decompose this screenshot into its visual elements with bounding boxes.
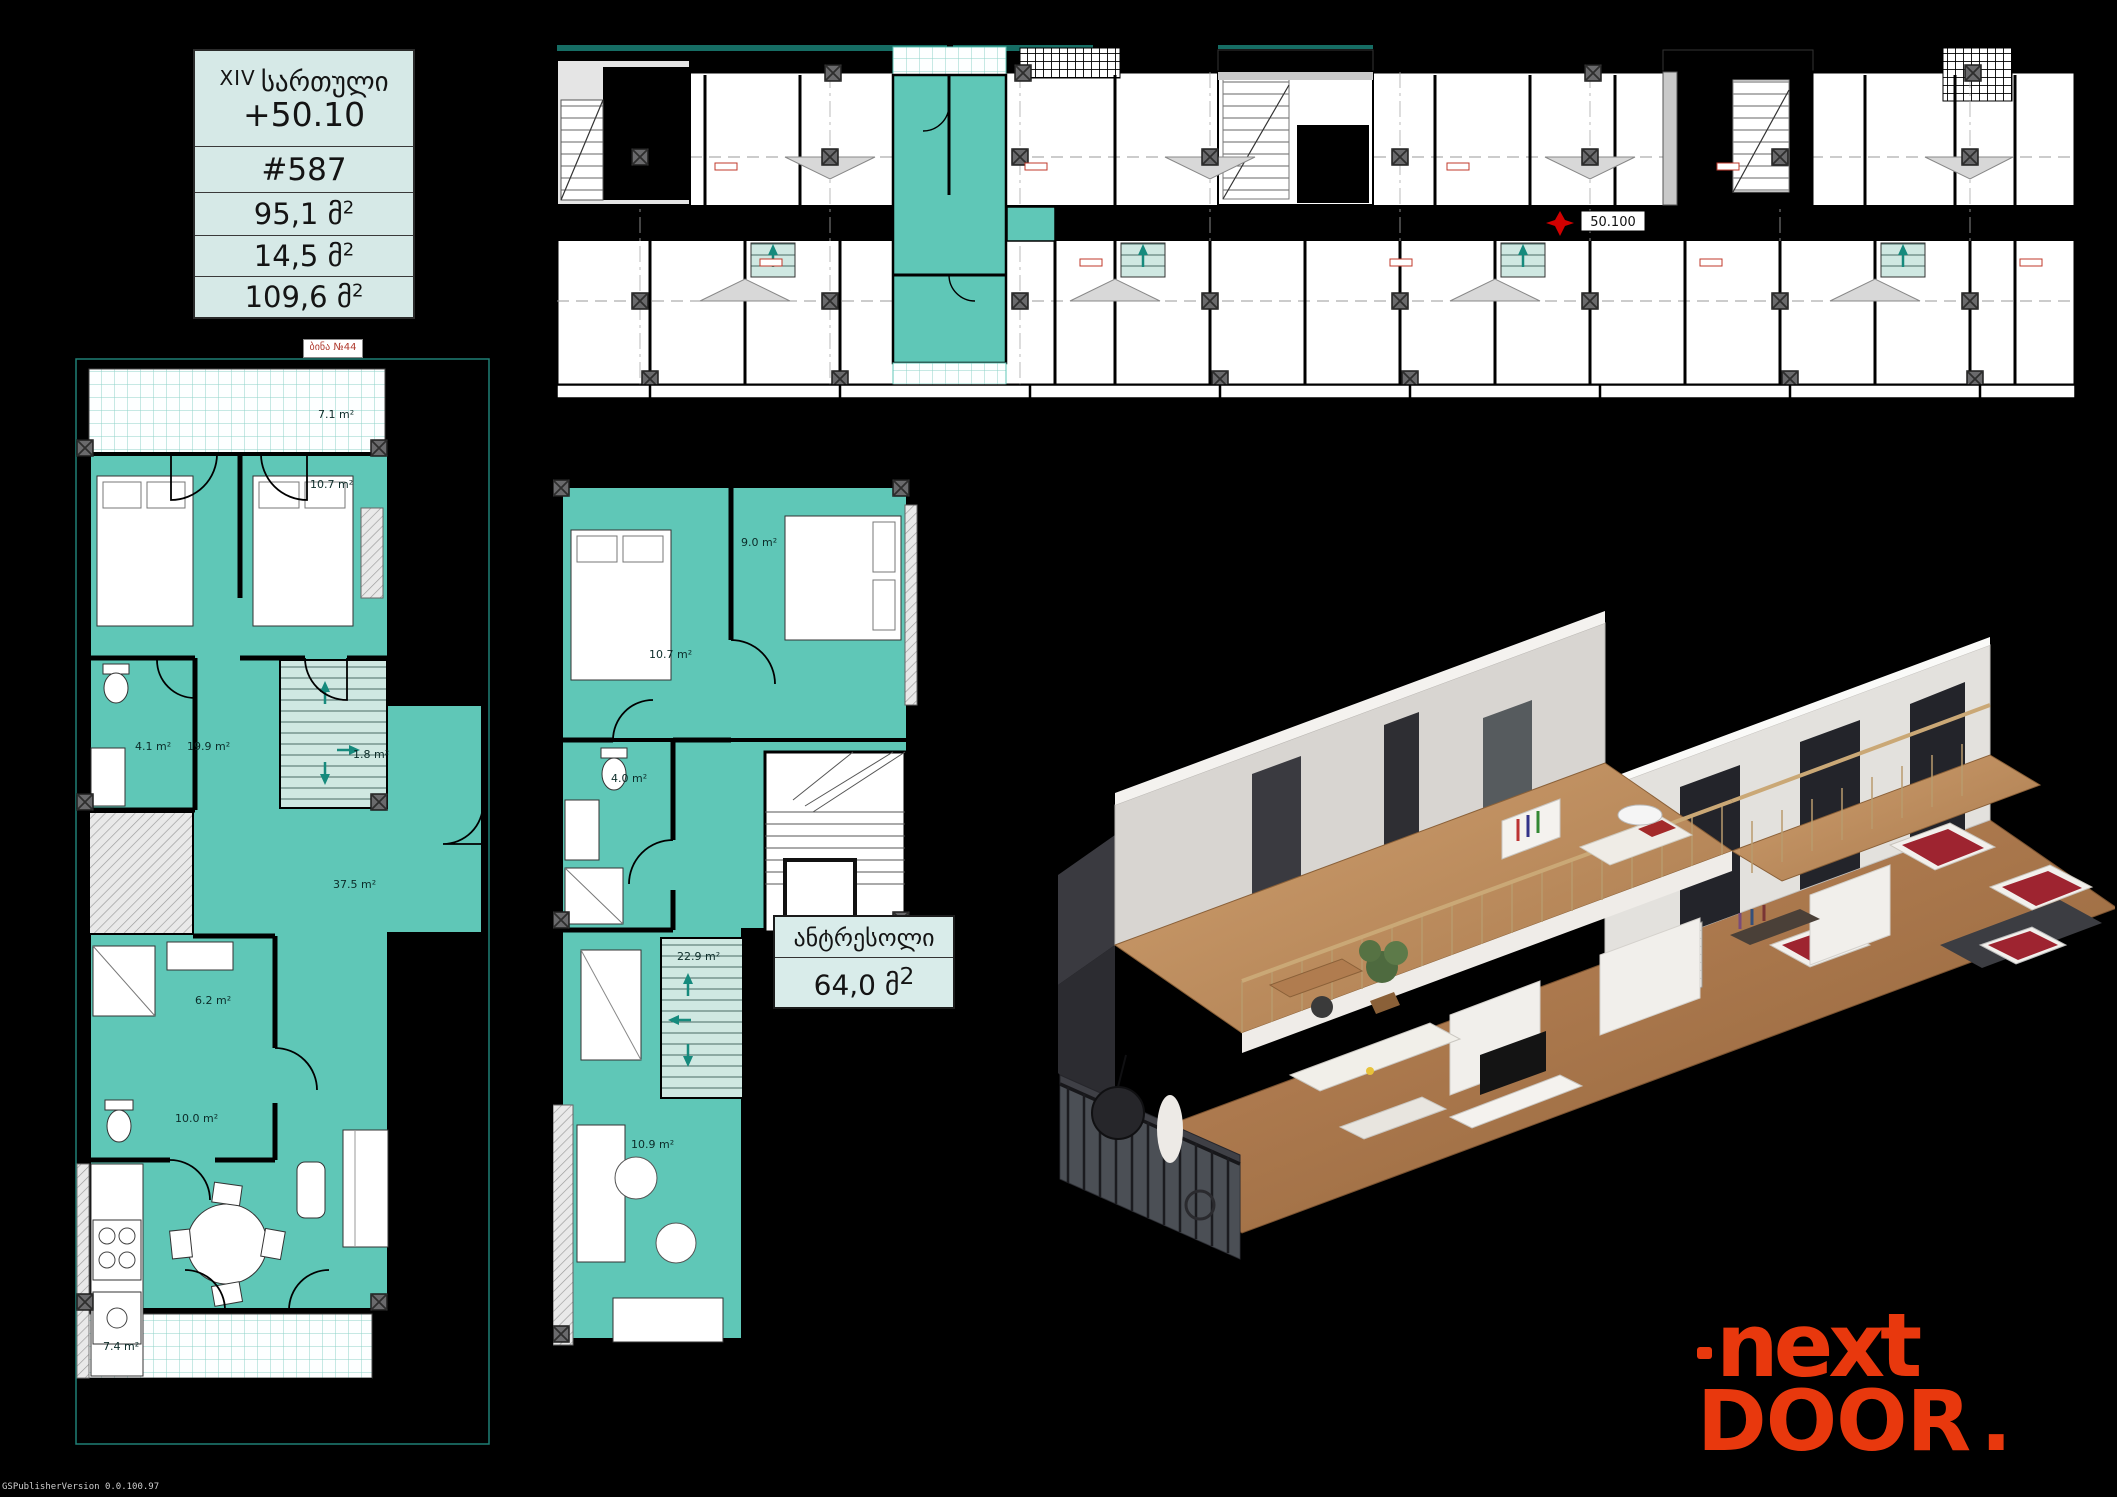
logo-dash-icon [1697, 1347, 1712, 1359]
svg-text:1.8 m²: 1.8 m² [353, 748, 389, 761]
floor-elevation: +50.10 [195, 98, 413, 132]
deck-strip [557, 45, 947, 51]
svg-text:9.0 m²: 9.0 m² [741, 536, 777, 549]
building-floor-plan: 50.100 [555, 45, 2077, 405]
apartment-number: #587 [261, 152, 346, 188]
svg-text:7.4 m²: 7.4 m² [103, 1340, 139, 1353]
apartment-3d-render [1040, 515, 2115, 1260]
mezzanine-title: ანტრესოლი [775, 917, 953, 958]
stair-core-right [1663, 72, 1813, 205]
publisher-watermark: GSPublisherVersion 0.0.100.97 [2, 1482, 159, 1492]
sill-band [557, 385, 2075, 398]
floor-row: XIV სართული +50.10 [195, 51, 413, 146]
main-stairs [765, 752, 905, 932]
svg-text:4.0 m²: 4.0 m² [611, 772, 647, 785]
mezzanine-area: 64,0 მ2 [775, 958, 953, 1007]
unit-balcony-top [893, 47, 1006, 75]
svg-text:10.7 m²: 10.7 m² [649, 648, 692, 661]
logo-line2: DOOR. [1697, 1382, 2011, 1460]
floor-word: სართული [261, 67, 389, 98]
floor-roman: XIV [219, 66, 255, 90]
doorway [1252, 756, 1301, 894]
wardrobe [89, 812, 193, 934]
area-main-row: 95,1 მ2 [195, 192, 413, 235]
elevation-text: 50.100 [1590, 215, 1636, 230]
area-total-row: 109,6 მ2 [195, 276, 413, 317]
area-secondary-row: 14,5 მ2 [195, 235, 413, 276]
svg-text:22.9 m²: 22.9 m² [677, 950, 720, 963]
floorplan-sheet: XIV სართული +50.10 #587 95,1 მ2 14,5 მ2 … [0, 0, 2117, 1497]
svg-text:37.5 m²: 37.5 m² [333, 878, 376, 891]
doorway [1384, 712, 1419, 845]
svg-text:4.1 m²: 4.1 m² [135, 740, 171, 753]
floor-label: XIV სართული [195, 66, 413, 98]
unit-info-table: XIV სართული +50.10 #587 95,1 მ2 14,5 მ2 … [193, 49, 415, 319]
hatch-patch [1020, 48, 1120, 78]
unit-plan-mezzanine: 9.0 m² 10.7 m² 4.0 m² 22.9 m² 10.9 m² [553, 460, 918, 1350]
svg-text:10.7 m²: 10.7 m² [310, 478, 353, 491]
nextdoor-logo: next DOOR. [1697, 1310, 2011, 1460]
stair-core-left [557, 60, 690, 205]
stairs [280, 660, 387, 808]
apartment-number-row: #587 [195, 146, 413, 192]
curtain [1157, 1095, 1183, 1163]
corridor [557, 205, 2075, 241]
unit-plan-main-level: 7.1 m² [75, 358, 490, 1445]
stair-core-middle [1218, 72, 1373, 205]
svg-text:10.0 m²: 10.0 m² [175, 1112, 218, 1125]
svg-text:6.2 m²: 6.2 m² [195, 994, 231, 1007]
apartment-tag: ბინა №44 [303, 339, 363, 358]
svg-text:10.9 m²: 10.9 m² [631, 1138, 674, 1151]
bath-tile [1483, 700, 1532, 808]
mezzanine-label-box: ანტრესოლი 64,0 მ2 [773, 915, 955, 1009]
hanging-chair [1092, 1087, 1144, 1139]
area-label: 7.1 m² [318, 408, 354, 421]
svg-text:19.9 m²: 19.9 m² [187, 740, 230, 753]
